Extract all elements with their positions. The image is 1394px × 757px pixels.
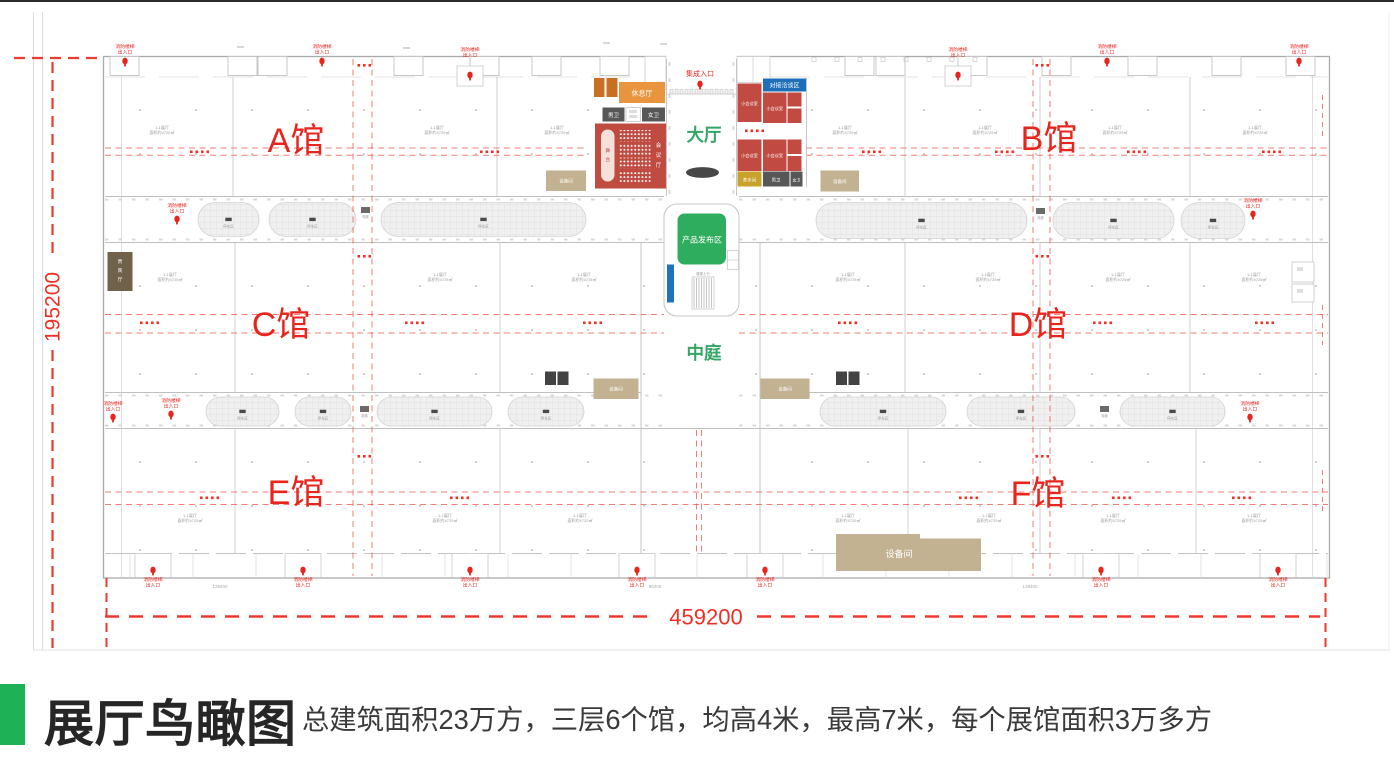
svg-text:消防楼梯: 消防楼梯 <box>1097 43 1116 50</box>
svg-text:459200: 459200 <box>669 605 742 630</box>
svg-text:消防楼梯: 消防楼梯 <box>460 46 479 53</box>
svg-text:面积约4725㎡: 面积约4725㎡ <box>150 129 175 135</box>
svg-text:消防楼梯: 消防楼梯 <box>1268 576 1287 583</box>
svg-text:电梯: 电梯 <box>361 413 368 418</box>
svg-text:面积约4725㎡: 面积约4725㎡ <box>433 517 458 523</box>
svg-text:面积约4725㎡: 面积约4725㎡ <box>178 517 203 523</box>
svg-text:A馆: A馆 <box>268 122 325 160</box>
svg-text:宾: 宾 <box>118 267 123 274</box>
svg-text:面积约4725㎡: 面积约4725㎡ <box>836 517 861 523</box>
svg-text:面积约4725㎡: 面积约4725㎡ <box>833 129 858 135</box>
svg-text:消防楼梯: 消防楼梯 <box>1289 43 1308 50</box>
svg-text:厅: 厅 <box>656 162 662 169</box>
svg-text:停车区: 停车区 <box>223 224 234 229</box>
svg-text:休息厅: 休息厅 <box>632 89 653 98</box>
svg-text:停车区: 停车区 <box>429 416 440 421</box>
svg-text:128400: 128400 <box>212 584 228 589</box>
svg-text:面积约4725㎡: 面积约4725㎡ <box>1101 517 1126 523</box>
svg-text:面积约4725㎡: 面积约4725㎡ <box>1103 129 1128 135</box>
svg-text:台: 台 <box>605 156 610 163</box>
svg-text:贵: 贵 <box>118 258 123 265</box>
svg-text:出入口: 出入口 <box>1243 406 1258 413</box>
svg-text:女卫: 女卫 <box>648 111 660 119</box>
svg-text:面积约4725㎡: 面积约4725㎡ <box>572 276 597 282</box>
svg-text:楼梯上行: 楼梯上行 <box>696 271 710 276</box>
svg-text:出入口: 出入口 <box>106 406 121 413</box>
svg-text:消防楼梯: 消防楼梯 <box>161 397 180 404</box>
svg-text:停车区: 停车区 <box>878 416 889 421</box>
svg-text:面积约4725㎡: 面积约4725㎡ <box>158 276 183 282</box>
svg-text:厅: 厅 <box>118 277 123 283</box>
svg-text:出入口: 出入口 <box>296 582 311 589</box>
svg-text:电梯: 电梯 <box>1101 413 1108 418</box>
svg-text:面积约4725㎡: 面积约4725㎡ <box>425 129 450 135</box>
svg-text:消防楼梯: 消防楼梯 <box>948 46 967 53</box>
svg-text:消防楼梯: 消防楼梯 <box>167 202 186 209</box>
svg-text:电梯: 电梯 <box>1037 215 1044 220</box>
svg-text:B馆: B馆 <box>1021 120 1078 158</box>
svg-text:设备间: 设备间 <box>609 386 623 393</box>
svg-text:消防楼梯: 消防楼梯 <box>1091 576 1110 583</box>
svg-text:面积约4725㎡: 面积约4725㎡ <box>1243 129 1268 135</box>
svg-text:消防楼梯: 消防楼梯 <box>1243 197 1262 204</box>
svg-text:面积约4725㎡: 面积约4725㎡ <box>976 276 1001 282</box>
svg-text:消防楼梯: 消防楼梯 <box>115 43 134 50</box>
svg-text:对接洽谈区: 对接洽谈区 <box>769 82 799 90</box>
svg-text:出入口: 出入口 <box>758 582 773 589</box>
svg-text:消防楼梯: 消防楼梯 <box>755 576 774 583</box>
svg-text:停车区: 停车区 <box>318 416 329 421</box>
svg-text:E馆: E馆 <box>268 474 325 512</box>
svg-text:停车区: 停车区 <box>1108 225 1119 230</box>
svg-text:停车区: 停车区 <box>237 416 248 421</box>
svg-text:出入口: 出入口 <box>951 52 966 59</box>
svg-text:小会议室: 小会议室 <box>766 152 783 159</box>
svg-text:设备间: 设备间 <box>833 178 847 185</box>
svg-text:大厅: 大厅 <box>687 125 722 145</box>
svg-text:出入口: 出入口 <box>146 582 161 589</box>
svg-text:出入口: 出入口 <box>1094 582 1109 589</box>
svg-text:面积约4725㎡: 面积约4725㎡ <box>545 129 570 135</box>
svg-text:设备间: 设备间 <box>559 178 573 185</box>
svg-text:女卫: 女卫 <box>793 177 801 183</box>
svg-text:消防楼梯: 消防楼梯 <box>312 43 331 50</box>
svg-text:停车区: 停车区 <box>1016 416 1027 421</box>
svg-text:停车区: 停车区 <box>541 416 552 421</box>
svg-text:舞: 舞 <box>605 147 610 154</box>
svg-text:消防楼梯: 消防楼梯 <box>143 576 162 583</box>
svg-text:停车区: 停车区 <box>1167 416 1178 421</box>
svg-text:面积约4725㎡: 面积约4725㎡ <box>977 517 1002 523</box>
svg-text:面积约4725㎡: 面积约4725㎡ <box>428 276 453 282</box>
svg-text:C馆: C馆 <box>252 306 311 344</box>
svg-text:出入口: 出入口 <box>1271 582 1286 589</box>
svg-text:集成入口: 集成入口 <box>686 69 714 78</box>
svg-text:出入口: 出入口 <box>170 208 185 215</box>
svg-text:D馆: D馆 <box>1009 306 1068 344</box>
svg-text:男卫: 男卫 <box>608 112 620 119</box>
svg-text:消防楼梯: 消防楼梯 <box>103 400 122 407</box>
svg-text:出入口: 出入口 <box>463 582 478 589</box>
svg-text:F馆: F馆 <box>1011 475 1066 513</box>
svg-text:设备间: 设备间 <box>778 386 792 393</box>
svg-text:议: 议 <box>656 151 662 159</box>
svg-text:电梯: 电梯 <box>362 214 369 219</box>
svg-text:出入口: 出入口 <box>630 582 645 589</box>
svg-text:小会议室: 小会议室 <box>741 100 758 107</box>
svg-text:停车区: 停车区 <box>1208 225 1219 230</box>
svg-text:出入口: 出入口 <box>1246 203 1261 210</box>
svg-text:出入口: 出入口 <box>1292 49 1307 56</box>
svg-text:面积约4725㎡: 面积约4725㎡ <box>973 129 998 135</box>
svg-text:面积约4725㎡: 面积约4725㎡ <box>568 517 593 523</box>
svg-text:产品发布区: 产品发布区 <box>682 235 722 245</box>
svg-text:消防楼梯: 消防楼梯 <box>627 576 646 583</box>
svg-text:面积约4725㎡: 面积约4725㎡ <box>1242 276 1267 282</box>
svg-text:中庭: 中庭 <box>687 343 722 363</box>
svg-text:面积约4725㎡: 面积约4725㎡ <box>1242 517 1267 523</box>
svg-text:停车区: 停车区 <box>307 224 318 229</box>
svg-text:出入口: 出入口 <box>315 49 330 56</box>
svg-text:会: 会 <box>656 141 662 149</box>
svg-text:出入口: 出入口 <box>118 49 133 56</box>
svg-text:面积约4725㎡: 面积约4725㎡ <box>836 276 861 282</box>
svg-text:面积约4725㎡: 面积约4725㎡ <box>1106 276 1131 282</box>
svg-text:出入口: 出入口 <box>164 403 179 410</box>
svg-text:消防楼梯: 消防楼梯 <box>293 576 312 583</box>
svg-text:设备间: 设备间 <box>885 548 912 559</box>
svg-text:停车区: 停车区 <box>916 225 927 230</box>
svg-text:停车区: 停车区 <box>478 224 489 229</box>
svg-text:86200: 86200 <box>649 584 662 589</box>
svg-text:出入口: 出入口 <box>1100 49 1115 56</box>
svg-text:出入口: 出入口 <box>463 52 478 59</box>
svg-text:小会议室: 小会议室 <box>741 152 758 159</box>
svg-text:茶水间: 茶水间 <box>743 177 757 184</box>
svg-text:小会议室: 小会议室 <box>766 105 783 112</box>
svg-text:195200: 195200 <box>42 272 65 342</box>
svg-text:消防楼梯: 消防楼梯 <box>460 576 479 583</box>
svg-text:消防楼梯: 消防楼梯 <box>1240 400 1259 407</box>
svg-text:128400: 128400 <box>1022 584 1038 589</box>
